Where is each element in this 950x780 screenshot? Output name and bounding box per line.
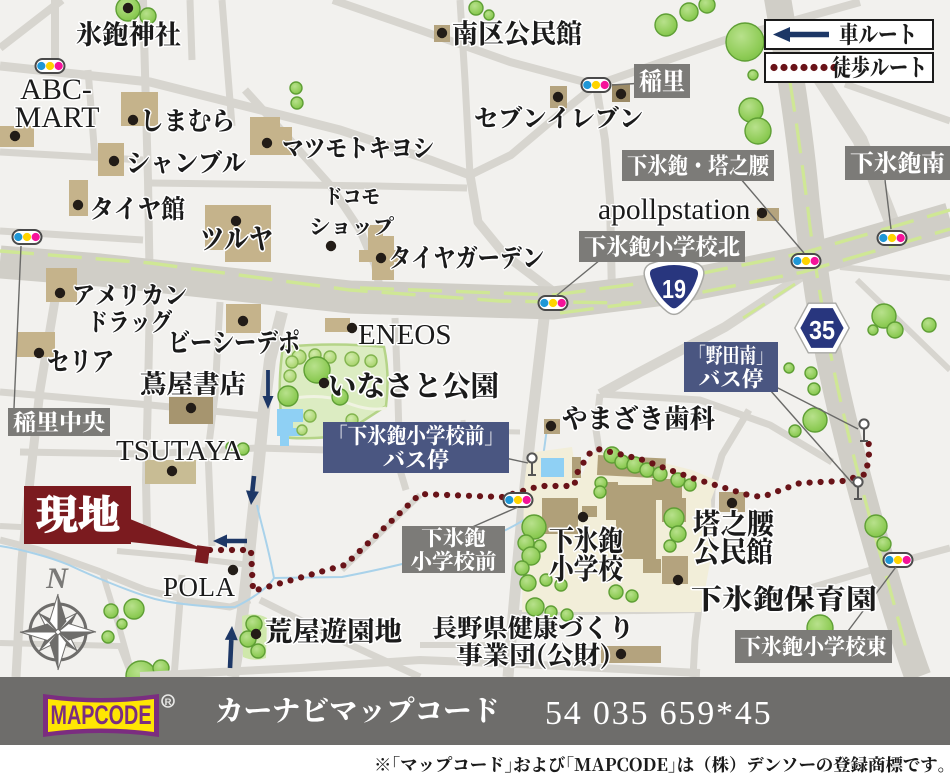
svg-text:54 035 659*45: 54 035 659*45 [545, 695, 772, 732]
svg-text:R: R [165, 697, 172, 708]
svg-text:POLA: POLA [163, 572, 236, 602]
svg-text:MART: MART [15, 101, 100, 134]
svg-text:MAPCODE: MAPCODE [51, 700, 152, 730]
svg-text:TSUTAYA: TSUTAYA [116, 435, 243, 467]
svg-text:19: 19 [662, 274, 686, 304]
svg-text:35: 35 [809, 315, 835, 345]
svg-text:apollpstation: apollpstation [598, 194, 751, 226]
svg-text:ENEOS: ENEOS [358, 319, 451, 351]
svg-text:N: N [45, 562, 69, 595]
